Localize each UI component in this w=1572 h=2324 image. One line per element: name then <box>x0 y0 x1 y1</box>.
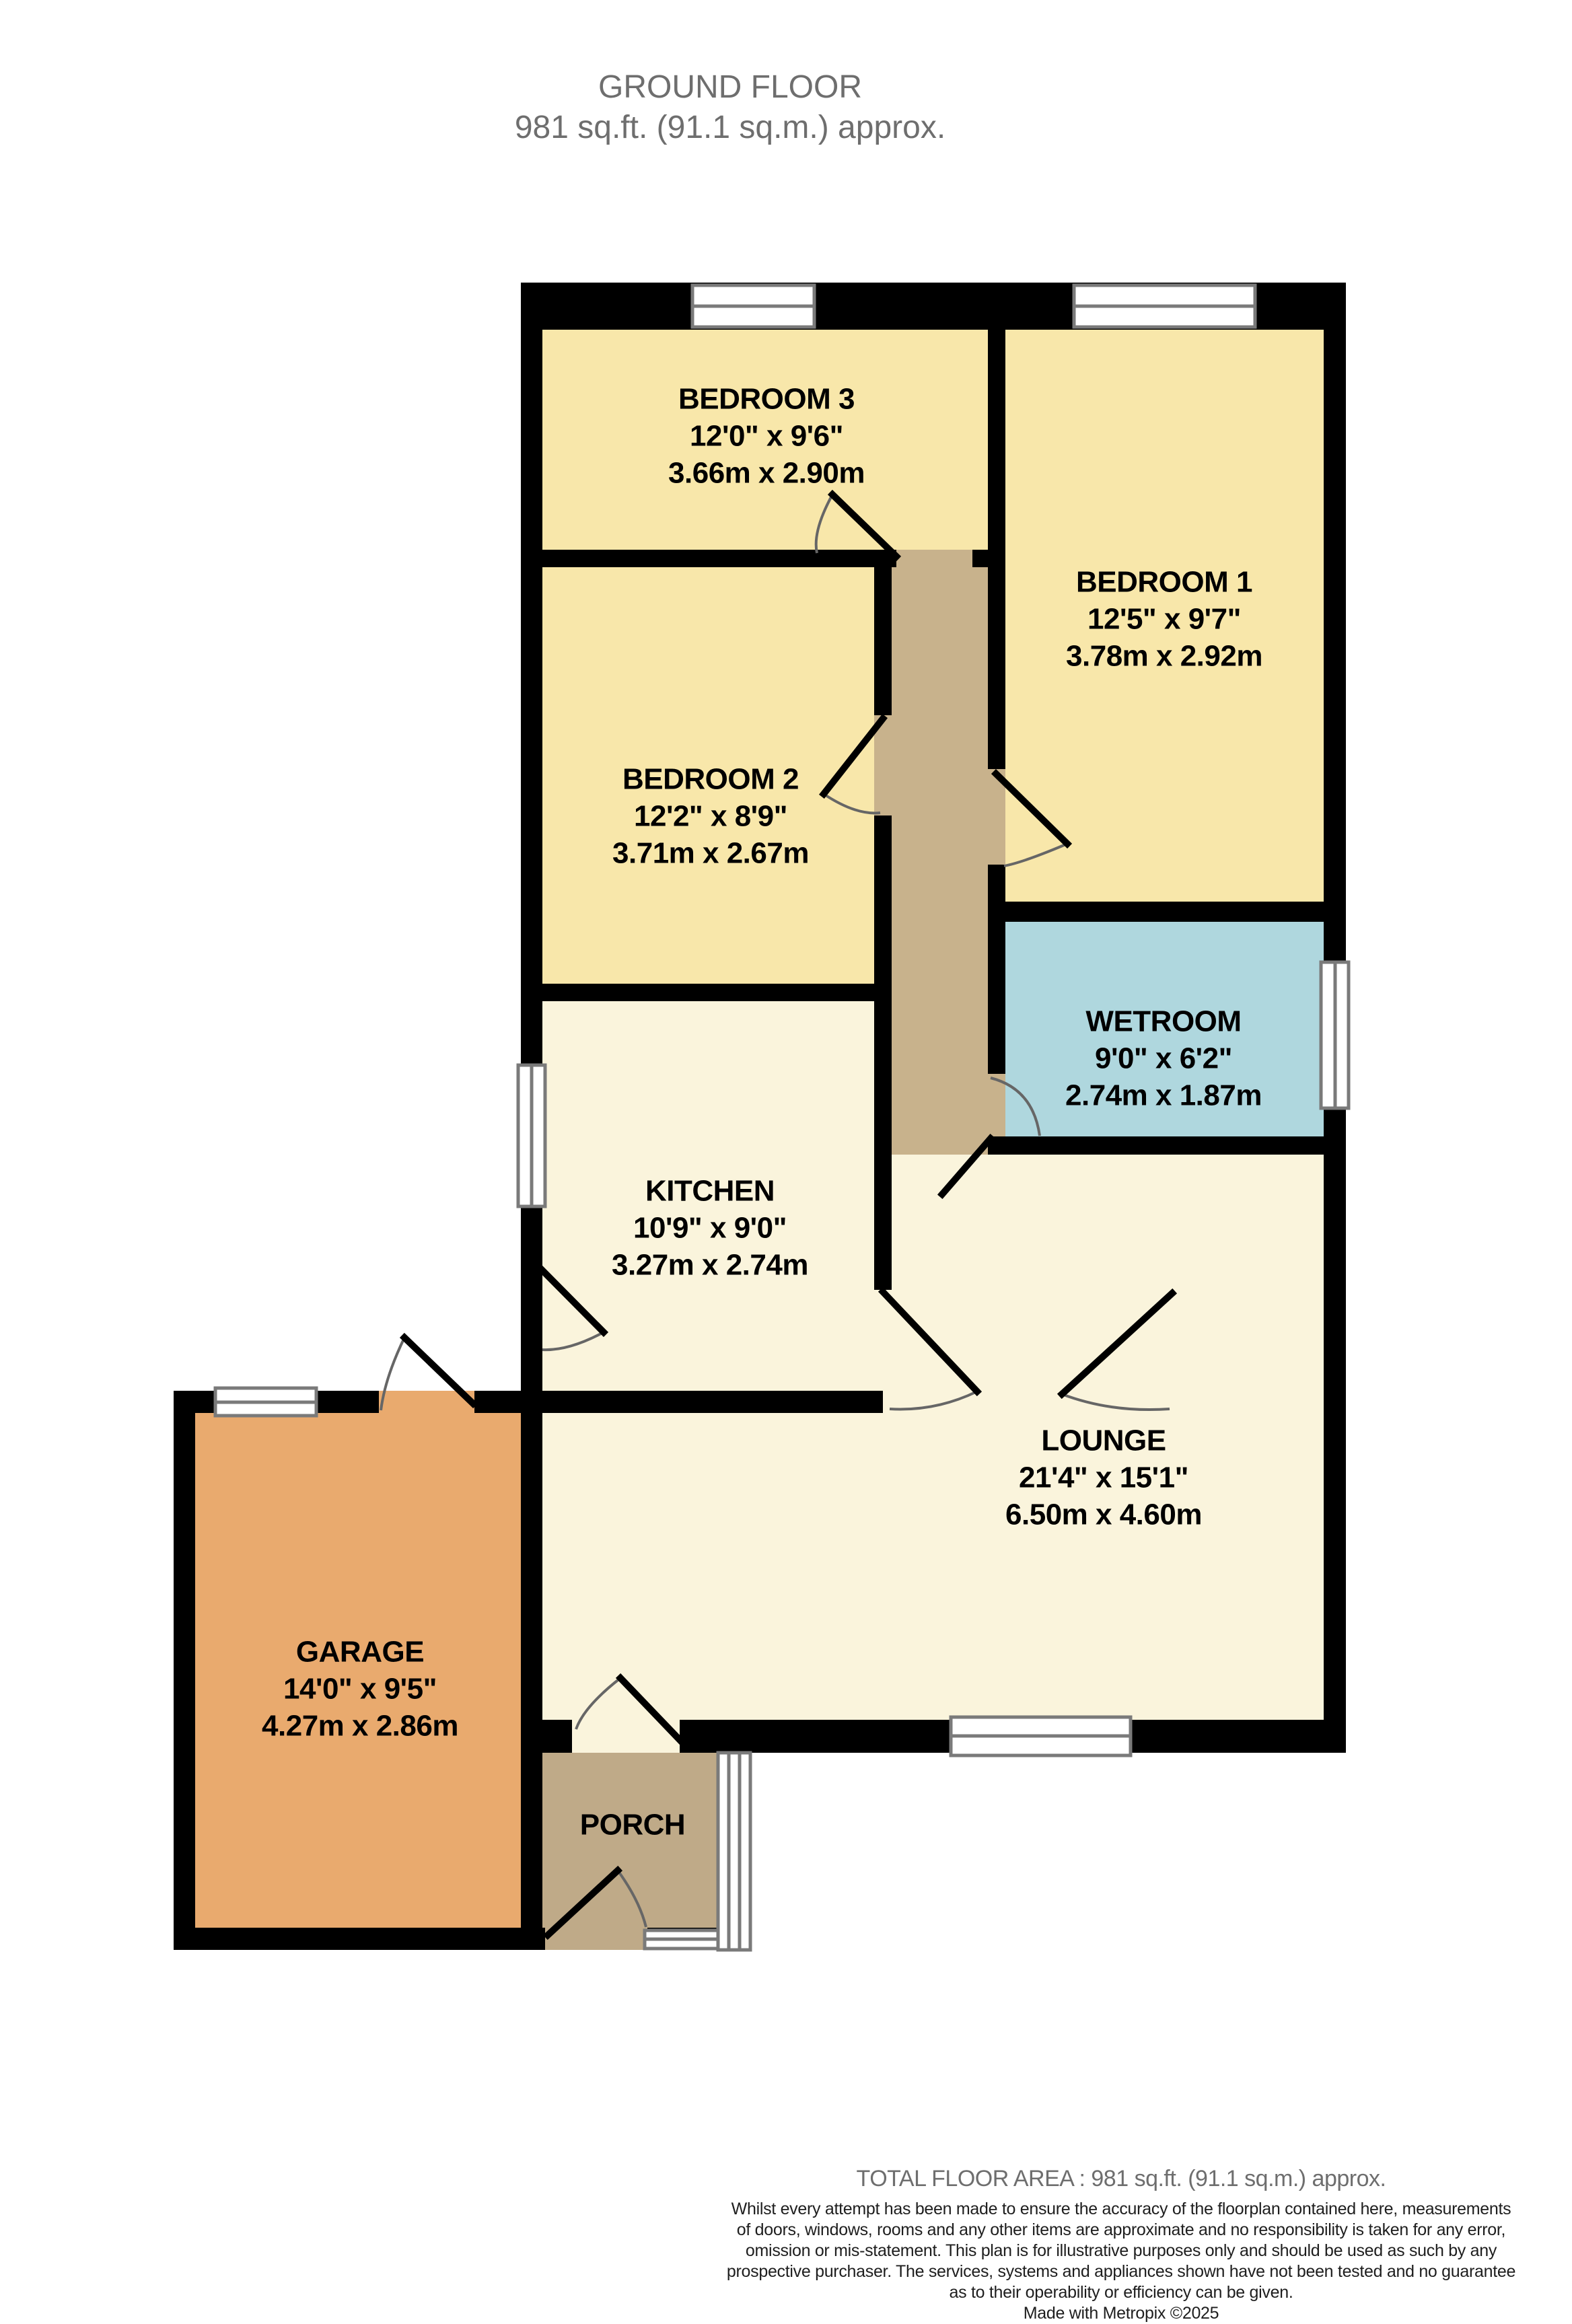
wall-kitchen-right <box>874 1001 892 1290</box>
wall-bedroom1-bottom <box>988 902 1346 922</box>
wall-garage-left <box>174 1391 195 1950</box>
wall-kitchen-bottom <box>521 1391 883 1413</box>
wall-bedroom3-bottom-stub <box>972 550 988 567</box>
bedroom-3-door-opening <box>896 550 972 567</box>
room-label-garage: GARAGE 14'0" x 9'5" 4.27m x 2.86m <box>262 1634 458 1745</box>
room-dims-metric: 2.74m x 1.87m <box>1065 1077 1262 1114</box>
room-label-lounge: LOUNGE 21'4" x 15'1" 6.50m x 4.60m <box>1005 1422 1202 1533</box>
window-bedroom1-top <box>1074 285 1255 327</box>
wall-garage-top-right <box>474 1391 521 1413</box>
footer: TOTAL FLOOR AREA : 981 sq.ft. (91.1 sq.m… <box>727 2165 1515 2324</box>
room-dims-metric: 3.66m x 2.90m <box>668 455 865 492</box>
total-floor-area: TOTAL FLOOR AREA : 981 sq.ft. (91.1 sq.m… <box>727 2165 1515 2192</box>
room-name: LOUNGE <box>1005 1422 1202 1459</box>
room-name: BEDROOM 1 <box>1066 564 1262 601</box>
window-lounge-bottom <box>951 1717 1131 1755</box>
room-dims-imperial: 10'9" x 9'0" <box>612 1210 808 1247</box>
room-name: GARAGE <box>262 1634 458 1671</box>
room-dims-metric: 3.71m x 2.67m <box>612 835 809 872</box>
wall-bedroom3-bottom <box>521 550 896 567</box>
wall-bedroom3-bedroom1 <box>988 283 1005 567</box>
room-label-kitchen: KITCHEN 10'9" x 9'0" 3.27m x 2.74m <box>612 1173 808 1284</box>
window-kitchen-left <box>518 1065 545 1206</box>
wall-garage-bottom <box>174 1928 542 1950</box>
porch-door-opening <box>545 1928 647 1950</box>
room-name: WETROOM <box>1065 1003 1262 1040</box>
room-dims-metric: 6.50m x 4.60m <box>1005 1496 1202 1533</box>
window-garage-top <box>215 1388 316 1416</box>
room-dims-imperial: 12'0" x 9'6" <box>668 418 865 455</box>
hallway-area <box>892 567 988 1155</box>
room-dims-metric: 3.27m x 2.74m <box>612 1247 808 1284</box>
wall-hall-right-upper <box>988 567 1005 769</box>
wall-porch-bottom-left <box>521 1928 545 1950</box>
room-dims-imperial: 12'5" x 9'7" <box>1066 601 1262 638</box>
disclaimer-line: omission or mis-statement. This plan is … <box>727 2241 1515 2261</box>
wall-bedroom2-kitchen <box>521 984 892 1001</box>
room-dims-imperial: 9'0" x 6'2" <box>1065 1040 1262 1077</box>
disclaimer-line: prospective purchaser. The services, sys… <box>727 2261 1515 2282</box>
room-dims-imperial: 12'2" x 8'9" <box>612 798 809 835</box>
disclaimer-line: as to their operability or efficiency ca… <box>727 2282 1515 2303</box>
room-name: KITCHEN <box>612 1173 808 1210</box>
window-porch-right-glazing <box>718 1753 750 1950</box>
room-dims-metric: 4.27m x 2.86m <box>262 1708 458 1745</box>
disclaimer-line: Whilst every attempt has been made to en… <box>727 2199 1515 2220</box>
window-bedroom3-top <box>692 285 814 327</box>
room-name: PORCH <box>580 1807 685 1844</box>
room-dims-imperial: 14'0" x 9'5" <box>262 1671 458 1708</box>
window-porch-bottom <box>645 1930 718 1949</box>
room-label-porch: PORCH <box>580 1807 685 1844</box>
room-name: BEDROOM 2 <box>612 761 809 798</box>
wall-front-left <box>521 1720 572 1753</box>
room-label-bedroom-1: BEDROOM 1 12'5" x 9'7" 3.78m x 2.92m <box>1066 564 1262 675</box>
floorplan-drawing <box>0 0 1572 2290</box>
room-label-bedroom-2: BEDROOM 2 12'2" x 8'9" 3.71m x 2.67m <box>612 761 809 872</box>
room-dims-imperial: 21'4" x 15'1" <box>1005 1459 1202 1496</box>
wall-bedroom2-right-lower <box>874 815 892 984</box>
wall-bedroom2-right-upper <box>874 567 892 715</box>
wall-hall-right-mid <box>988 865 1005 1074</box>
room-label-bedroom-3: BEDROOM 3 12'0" x 9'6" 3.66m x 2.90m <box>668 381 865 492</box>
window-wetroom-right <box>1321 962 1349 1108</box>
room-name: BEDROOM 3 <box>668 381 865 418</box>
room-dims-metric: 3.78m x 2.92m <box>1066 638 1262 675</box>
room-label-wetroom: WETROOM 9'0" x 6'2" 2.74m x 1.87m <box>1065 1003 1262 1114</box>
disclaimer-line: of doors, windows, rooms and any other i… <box>727 2220 1515 2241</box>
metropix-credit: Made with Metropix ©2025 <box>727 2303 1515 2324</box>
wall-wetroom-bottom <box>988 1136 1346 1155</box>
